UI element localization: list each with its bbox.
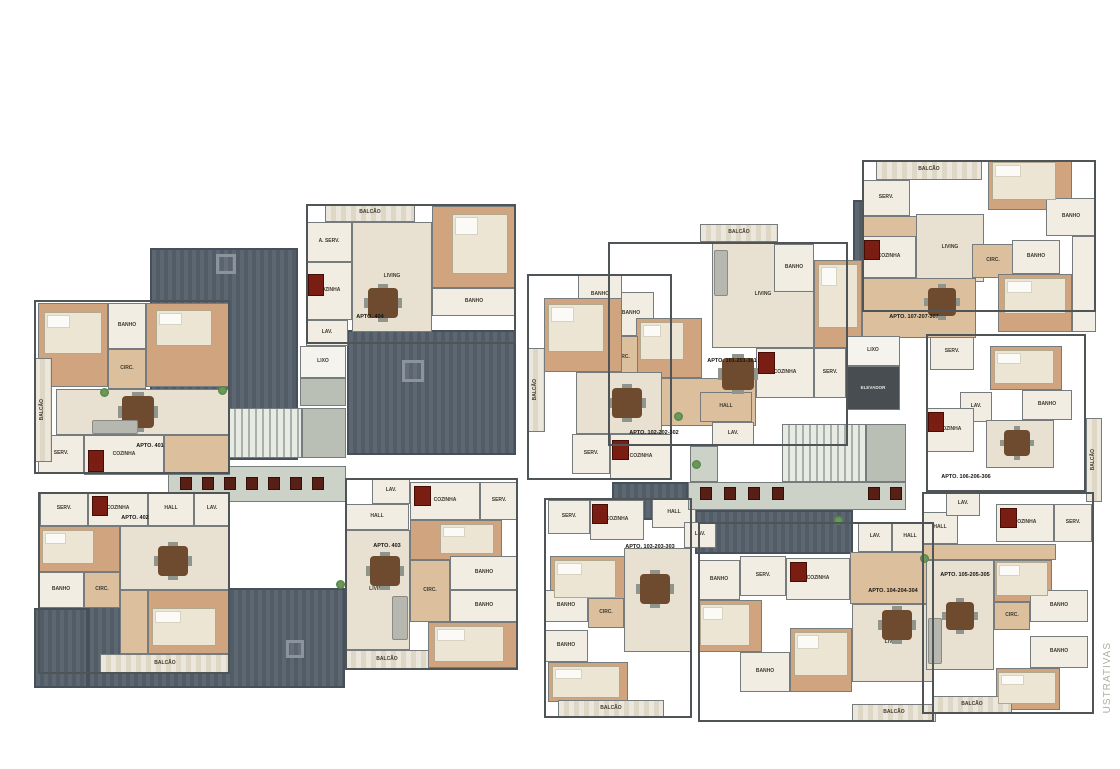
room-label: BALCÃO bbox=[600, 706, 621, 712]
room-core bbox=[866, 424, 906, 482]
room-banho: BANHO bbox=[1012, 240, 1060, 274]
room-label: APTO. 401 bbox=[136, 443, 163, 449]
sofa-furniture bbox=[392, 596, 408, 640]
sofa-furniture bbox=[928, 618, 942, 664]
bed-furniture bbox=[554, 560, 616, 598]
room-serv: SERV. bbox=[814, 348, 846, 398]
plant-furniture bbox=[100, 388, 109, 397]
table-furniture bbox=[158, 546, 188, 576]
room-label: LAV. bbox=[695, 532, 706, 538]
entry-door bbox=[246, 477, 258, 490]
room-balc-o: BALCÃO bbox=[700, 224, 778, 242]
bed-furniture bbox=[152, 608, 216, 646]
room-label: LIVING bbox=[885, 640, 902, 646]
room-label: APTO. 103-203-303 bbox=[625, 544, 674, 550]
apartment-number-label: APTO. 402 bbox=[100, 513, 170, 523]
table-furniture bbox=[640, 574, 670, 604]
plant-furniture bbox=[920, 554, 929, 563]
appl-furniture bbox=[864, 240, 880, 260]
room-label: BALCÃO bbox=[918, 167, 939, 173]
room-serv: SERV. bbox=[862, 180, 910, 216]
entry-door bbox=[180, 477, 192, 490]
bed-furniture bbox=[640, 322, 684, 360]
room-serv: SERV. bbox=[740, 556, 786, 596]
room-label: HALL bbox=[719, 404, 732, 410]
apartment-number-label: APTO. 401 bbox=[115, 441, 185, 451]
table-furniture bbox=[370, 556, 400, 586]
apartment-number-label: APTO. 104-204-304 bbox=[852, 586, 934, 596]
room-label: APTO. 402 bbox=[121, 515, 148, 521]
room-lixo: LIXO bbox=[846, 336, 900, 366]
entry-door bbox=[772, 487, 784, 500]
room-label: BALCÃO bbox=[533, 379, 539, 400]
entry-door bbox=[268, 477, 280, 490]
bed-furniture bbox=[42, 530, 94, 564]
room-label: CIRC. bbox=[599, 610, 613, 616]
room-label: BANHO bbox=[710, 577, 728, 583]
room-serv: SERV. bbox=[930, 334, 974, 370]
bed-furniture bbox=[818, 264, 858, 328]
room-label: BALCÃO bbox=[883, 710, 904, 716]
room-banho: BANHO bbox=[1046, 198, 1096, 236]
room-label: BANHO bbox=[557, 603, 575, 609]
room-lav: LAV. bbox=[712, 422, 754, 446]
apartment-number-label: APTO. 403 bbox=[352, 541, 422, 551]
bed-furniture bbox=[1004, 278, 1066, 314]
terrace-roof bbox=[695, 510, 853, 554]
room-label: BANHO bbox=[756, 669, 774, 675]
entry-door bbox=[700, 487, 712, 500]
apartment-number-label: APTO. 101-201-301 bbox=[692, 356, 772, 366]
room-label: BANHO bbox=[1050, 649, 1068, 655]
appl-furniture bbox=[1000, 508, 1017, 528]
room-label: LAV. bbox=[728, 431, 739, 437]
room-label: COZINHA bbox=[774, 370, 797, 376]
room-label: BANHO bbox=[1027, 254, 1045, 260]
room-banho: BANHO bbox=[1030, 636, 1088, 668]
room-label: COZINHA bbox=[630, 454, 653, 460]
room-label: LAV. bbox=[870, 534, 881, 540]
room-hall: HALL bbox=[922, 512, 958, 544]
entry-door bbox=[748, 487, 760, 500]
room-banho: BANHO bbox=[698, 560, 740, 600]
bed-furniture bbox=[452, 214, 508, 274]
room-label: LAV. bbox=[958, 501, 969, 507]
plant-furniture bbox=[692, 460, 701, 469]
room-label: BANHO bbox=[557, 643, 575, 649]
room-label: BANHO bbox=[1038, 402, 1056, 408]
appl-furniture bbox=[308, 274, 324, 296]
room-label: ELEVADOR bbox=[861, 385, 886, 390]
entry-door bbox=[724, 487, 736, 500]
room-elevador: ELEVADOR bbox=[846, 366, 900, 410]
sofa-furniture bbox=[92, 420, 138, 434]
room-label: SERV. bbox=[756, 573, 770, 579]
room-label: SERV. bbox=[945, 349, 959, 355]
room-label: BALCÃO bbox=[1091, 449, 1097, 470]
room-label: APTO. 104-204-304 bbox=[868, 588, 917, 594]
room-label: CIRC. bbox=[1005, 613, 1019, 619]
apartment-number-label: APTO. 102-202-302 bbox=[614, 428, 694, 438]
room-label: COZINHA bbox=[878, 254, 901, 260]
sofa-furniture bbox=[714, 250, 728, 296]
room-label: APTO. 403 bbox=[373, 543, 400, 549]
room-label: APTO. 105-205-305 bbox=[940, 572, 989, 578]
room-label: SERV. bbox=[584, 451, 598, 457]
bed-furniture bbox=[434, 626, 504, 662]
room-label: SERV. bbox=[823, 370, 837, 376]
table-furniture bbox=[946, 602, 974, 630]
room-label: COZINHA bbox=[606, 517, 629, 523]
plant-furniture bbox=[834, 516, 843, 525]
table-furniture bbox=[882, 610, 912, 640]
apartment-number-label: APTO. 103-203-303 bbox=[610, 542, 690, 552]
entry-door bbox=[202, 477, 214, 490]
room-lav: LAV. bbox=[946, 492, 980, 516]
room-label: BALCÃO bbox=[728, 230, 749, 236]
room-label: BANHO bbox=[591, 292, 609, 298]
room-balc-o: BALCÃO bbox=[852, 704, 936, 722]
room-label: BANHO bbox=[1062, 214, 1080, 220]
table-furniture bbox=[1004, 430, 1030, 456]
bed-furniture bbox=[552, 666, 620, 698]
room-label: LIVING bbox=[755, 292, 772, 298]
room-hall: HALL bbox=[700, 392, 752, 422]
room-wood2 bbox=[922, 544, 1056, 560]
room-label: APTO. 107-207-307 bbox=[889, 314, 938, 320]
plant-furniture bbox=[336, 580, 345, 589]
room-balc-o: BALCÃO bbox=[558, 700, 664, 718]
room-serv: SERV. bbox=[548, 500, 590, 534]
room-lav: LAV. bbox=[858, 522, 892, 552]
appl-furniture bbox=[790, 562, 807, 582]
room-label: LIVING bbox=[942, 245, 959, 251]
appl-furniture bbox=[414, 486, 431, 506]
apartment-number-label: APTO. 107-207-307 bbox=[872, 312, 956, 322]
room-label: HALL bbox=[903, 534, 916, 540]
entry-door bbox=[290, 477, 302, 490]
room-label: APTO. 404 bbox=[356, 314, 383, 320]
bed-furniture bbox=[998, 672, 1056, 704]
floor-plans-canvas: USTRATIVAS BALCÃOA. SERV.COZINHALIVINGSU… bbox=[0, 0, 1120, 769]
bed-furniture bbox=[44, 312, 102, 354]
room-stair bbox=[782, 424, 866, 482]
room-label: SERV. bbox=[879, 195, 893, 201]
room-label: CIRC. bbox=[986, 258, 1000, 264]
entry-door bbox=[868, 487, 880, 500]
appl-furniture bbox=[928, 412, 944, 432]
bed-furniture bbox=[548, 304, 604, 352]
room-circ: CIRC. bbox=[588, 598, 624, 628]
table-furniture bbox=[612, 388, 642, 418]
room-serv: SERV. bbox=[572, 434, 610, 474]
plant-furniture bbox=[674, 412, 683, 421]
bed-furniture bbox=[994, 350, 1054, 384]
room-label: BANHO bbox=[622, 311, 640, 317]
room-label: APTO. 102-202-302 bbox=[629, 430, 678, 436]
entry-door bbox=[224, 477, 236, 490]
room-label: BANHO bbox=[785, 265, 803, 271]
room-label: HALL bbox=[933, 525, 946, 531]
room-label: SERV. bbox=[1066, 520, 1080, 526]
floor-plan-right: BALCÃOLIVINGBANHOSUÍTEBANHOSUÍTE 02CIRC.… bbox=[0, 0, 1120, 769]
room-balc-o: BALCÃO bbox=[1086, 418, 1102, 502]
room-banho: BANHO bbox=[774, 244, 814, 292]
room-banho: BANHO bbox=[544, 630, 588, 662]
appl-furniture bbox=[592, 504, 608, 524]
room-label: APTO. 101-201-301 bbox=[707, 358, 756, 364]
room-label: HALL bbox=[667, 510, 680, 516]
room-label: COZINHA bbox=[1014, 520, 1037, 526]
room-balc-o: BALCÃO bbox=[527, 348, 545, 432]
bed-furniture bbox=[156, 310, 212, 346]
room-label: BANHO bbox=[1050, 603, 1068, 609]
room-label: APTO. 106-206-306 bbox=[941, 474, 990, 480]
room-label: LIXO bbox=[867, 348, 879, 354]
apartment-number-label: APTO. 404 bbox=[335, 312, 405, 322]
appl-furniture bbox=[88, 450, 104, 472]
bed-furniture bbox=[794, 632, 848, 676]
room-circ: CIRC. bbox=[994, 602, 1030, 630]
room-balc-o: BALCÃO bbox=[876, 160, 982, 180]
room-tile bbox=[1072, 236, 1096, 332]
apartment-number-label: APTO. 106-206-306 bbox=[924, 472, 1008, 482]
bed-furniture bbox=[440, 524, 494, 554]
room-label: COZINHA bbox=[807, 576, 830, 582]
room-banho: BANHO bbox=[740, 652, 790, 692]
appl-furniture bbox=[612, 440, 629, 460]
apartment-number-label: APTO. 105-205-305 bbox=[924, 570, 1006, 580]
room-wood2 bbox=[862, 278, 976, 338]
entry-door bbox=[890, 487, 902, 500]
bed-furniture bbox=[700, 604, 750, 646]
room-banho: BANHO bbox=[1022, 390, 1072, 420]
room-serv: SERV. bbox=[1054, 504, 1092, 542]
plant-furniture bbox=[218, 386, 227, 395]
room-label: SERV. bbox=[562, 514, 576, 520]
room-circ: CIRC. bbox=[972, 244, 1014, 278]
room-label: BALCÃO bbox=[961, 702, 982, 708]
entry-door bbox=[312, 477, 324, 490]
bed-furniture bbox=[992, 162, 1056, 200]
